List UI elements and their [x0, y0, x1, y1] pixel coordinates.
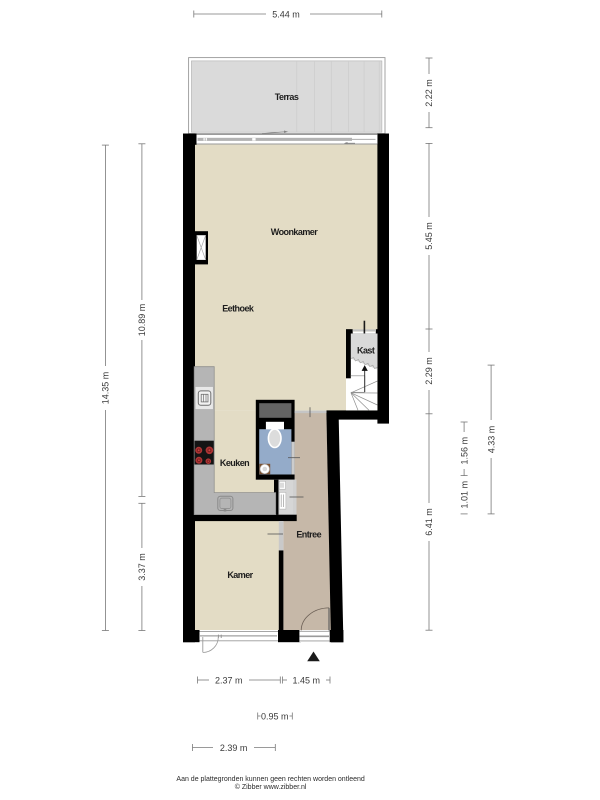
svg-text:Eethoek: Eethoek [222, 304, 255, 314]
svg-text:6.41 m: 6.41 m [424, 508, 434, 536]
svg-text:3.37 m: 3.37 m [137, 553, 147, 581]
svg-text:10.89 m: 10.89 m [137, 304, 147, 337]
svg-text:Kast: Kast [357, 346, 375, 356]
svg-text:Entree: Entree [296, 530, 321, 540]
svg-text:0.95 m: 0.95 m [261, 711, 289, 721]
svg-text:1.01 m: 1.01 m [459, 481, 469, 509]
svg-text:2.37 m: 2.37 m [215, 675, 243, 685]
svg-text:© Zibber www.zibber.nl: © Zibber www.zibber.nl [235, 783, 307, 791]
svg-text:2.29 m: 2.29 m [424, 357, 434, 385]
svg-text:1.56 m: 1.56 m [459, 437, 469, 465]
svg-text:14.35 m: 14.35 m [101, 372, 111, 405]
svg-text:5.44 m: 5.44 m [272, 9, 300, 19]
svg-text:Terras: Terras [275, 92, 299, 102]
svg-text:Keuken: Keuken [220, 458, 249, 468]
svg-text:Kamer: Kamer [227, 570, 253, 580]
svg-text:Aan de plattegronden kunnen ge: Aan de plattegronden kunnen geen rechten… [176, 776, 364, 783]
svg-text:2.39 m: 2.39 m [220, 743, 248, 753]
svg-text:1.45 m: 1.45 m [293, 675, 321, 685]
svg-text:Woonkamer: Woonkamer [271, 227, 318, 237]
svg-text:2.22 m: 2.22 m [424, 79, 434, 107]
svg-text:5.45 m: 5.45 m [424, 222, 434, 250]
svg-text:4.33 m: 4.33 m [486, 426, 496, 454]
